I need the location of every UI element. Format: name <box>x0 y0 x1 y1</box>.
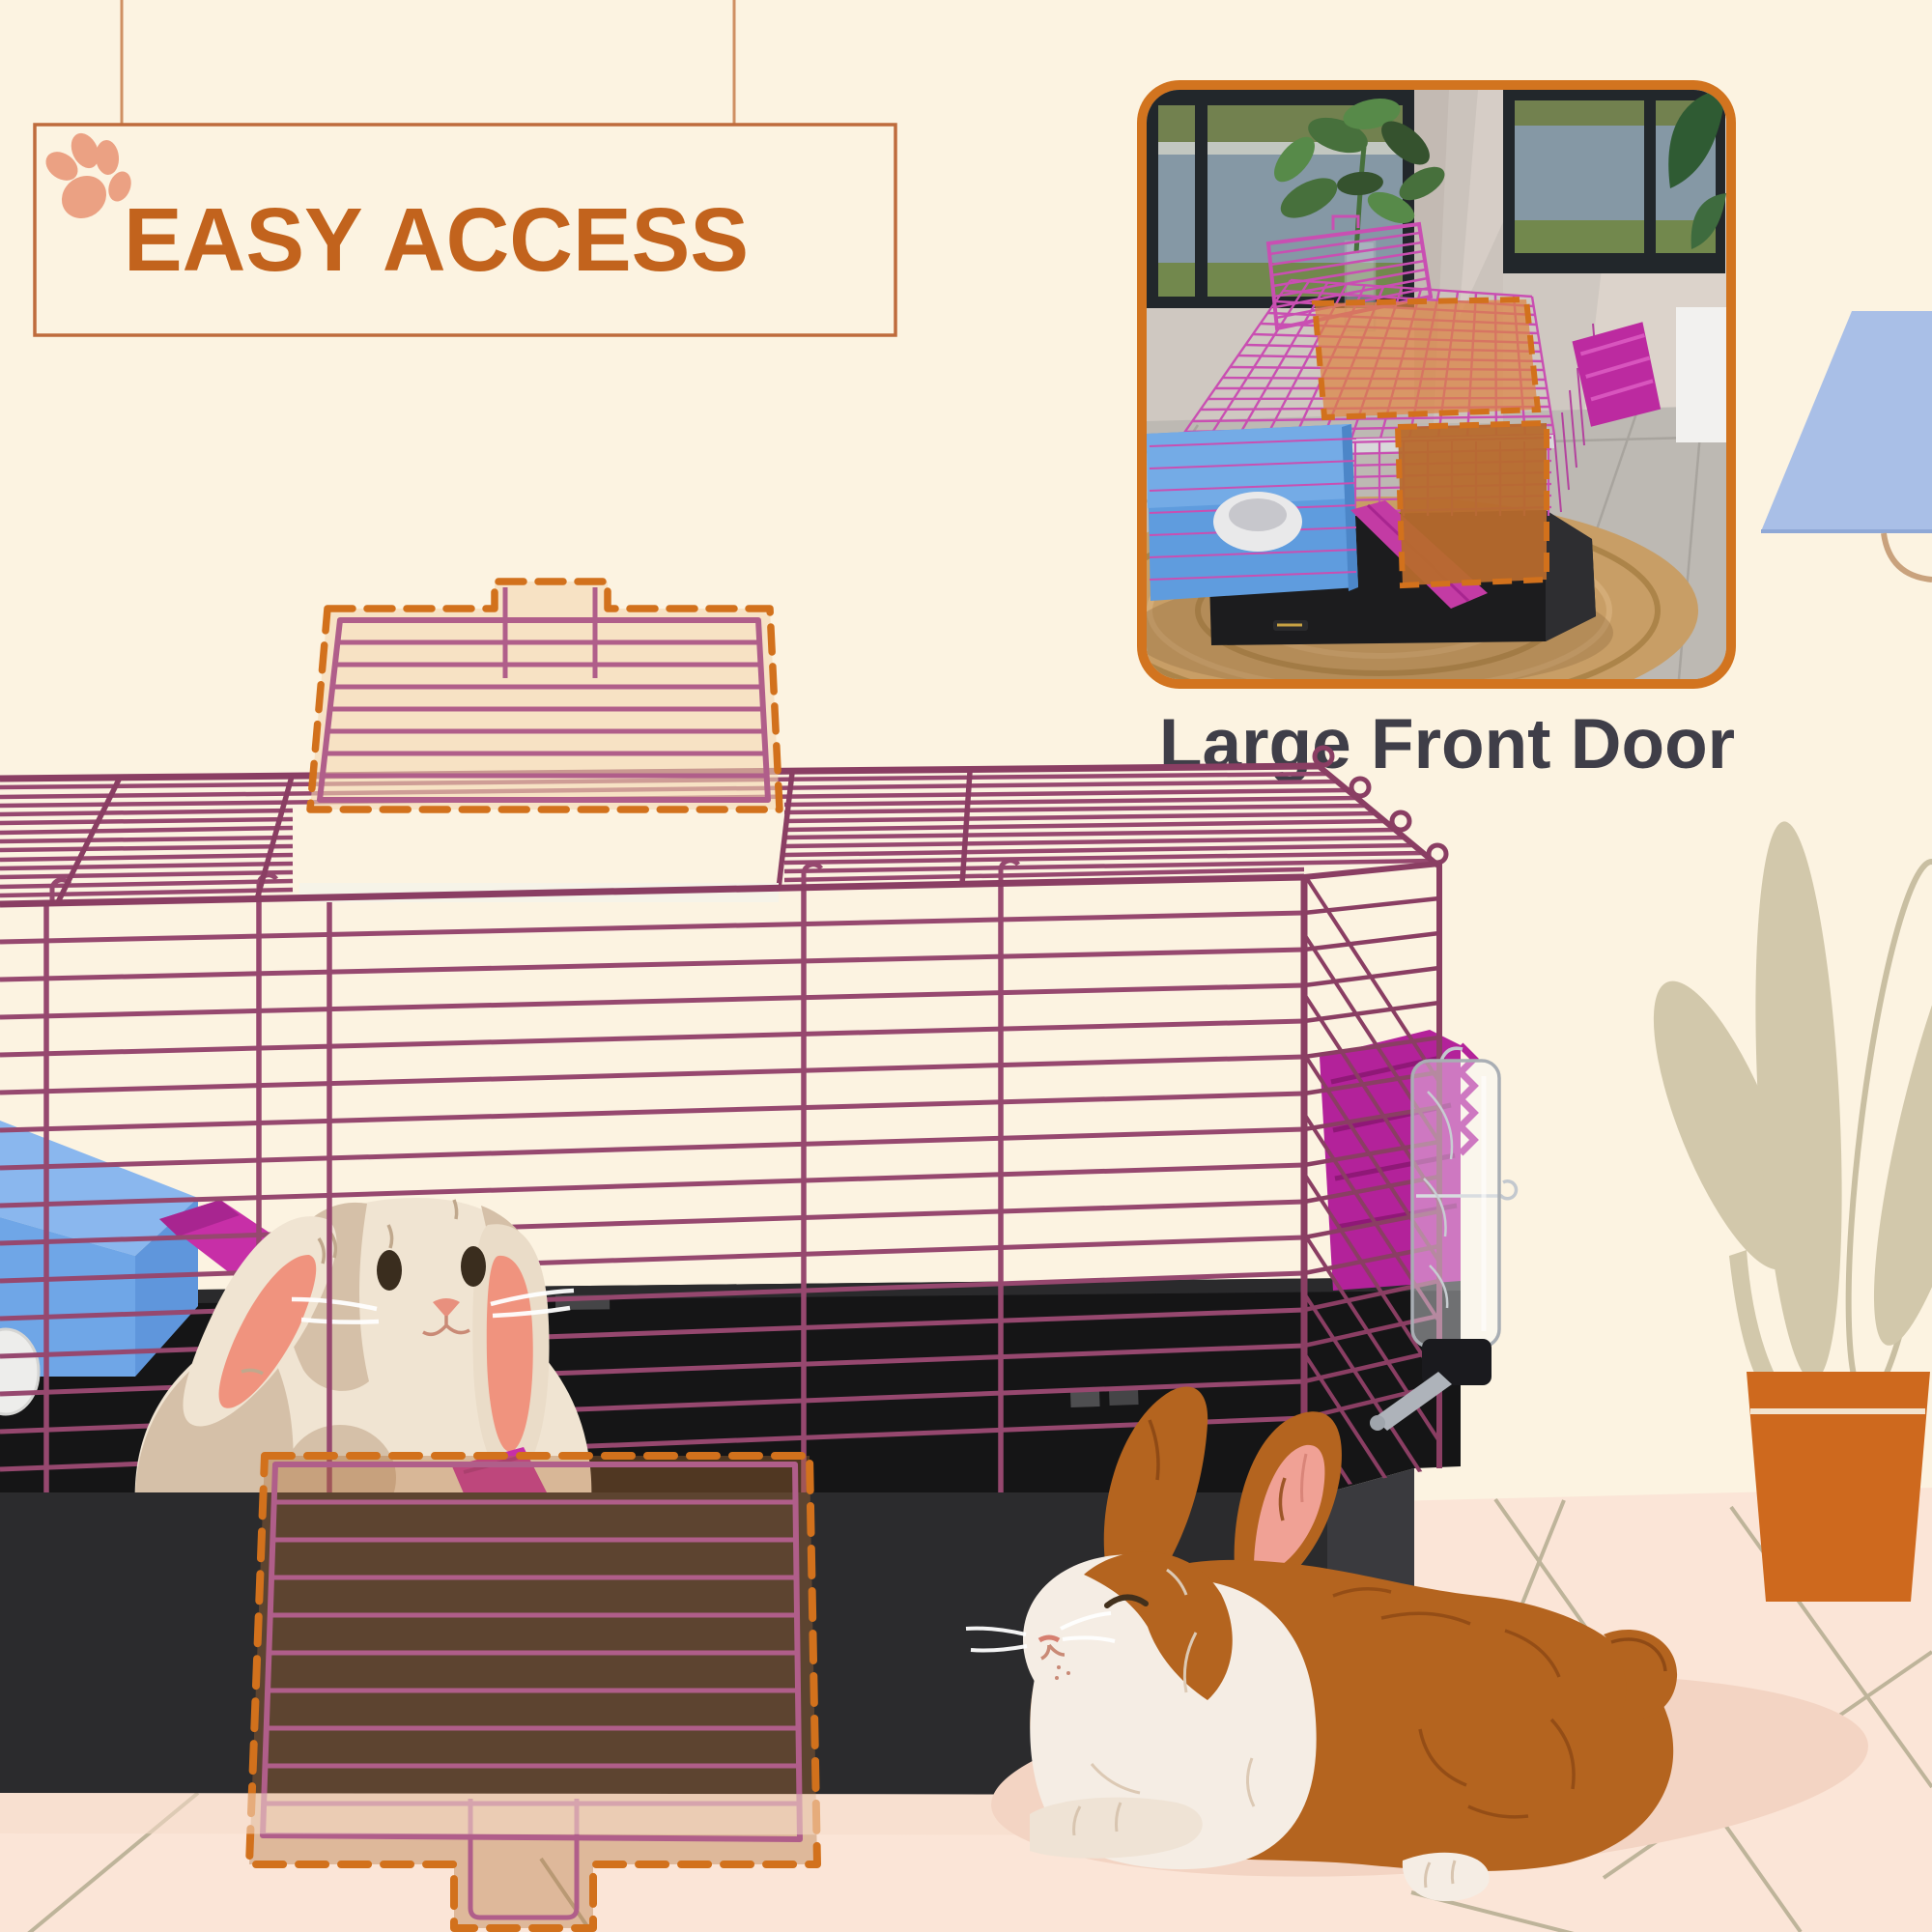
svg-text:EASY ACCESS: EASY ACCESS <box>124 189 749 290</box>
svg-text:Large Front Door: Large Front Door <box>1159 705 1735 783</box>
